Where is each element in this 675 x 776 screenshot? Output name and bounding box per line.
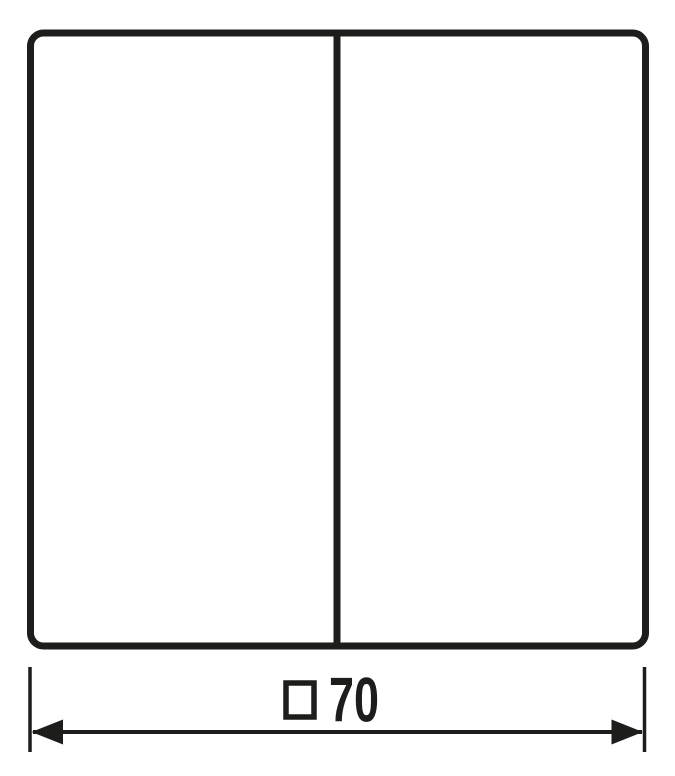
- square-symbol-icon: [286, 683, 314, 717]
- drawing-canvas: 70: [0, 0, 675, 776]
- dimension-value: 70: [329, 666, 379, 736]
- dimension-drawing: 70: [0, 0, 675, 776]
- dimension-arrowhead-right-icon: [612, 720, 644, 745]
- dimension-arrowhead-left-icon: [32, 720, 64, 745]
